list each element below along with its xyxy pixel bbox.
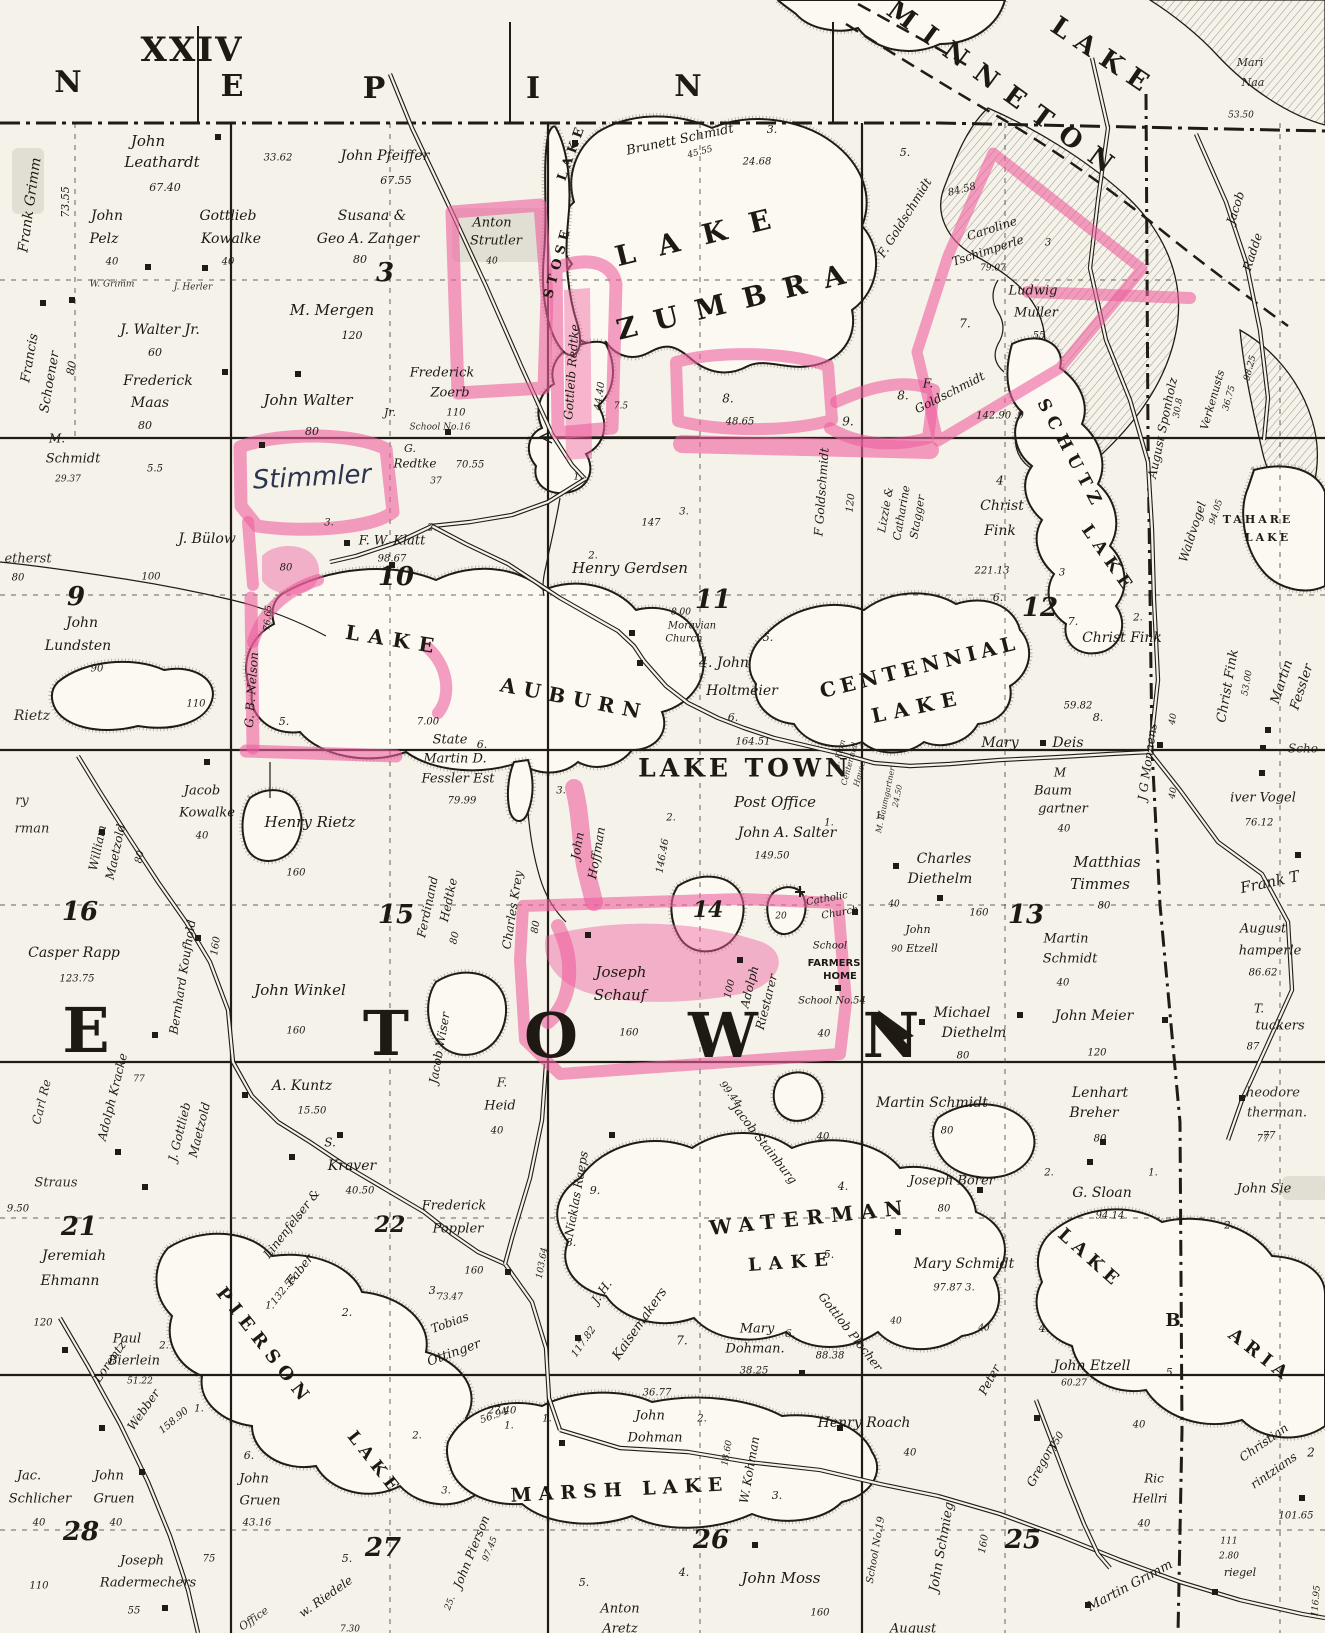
map-label: Naa: [1241, 76, 1265, 89]
map-label: 160: [464, 1266, 484, 1277]
map-label: 55: [1033, 331, 1046, 342]
map-label: Redtke: [392, 457, 436, 471]
map-label: Gruen: [239, 1494, 280, 1509]
map-label: Frederick: [122, 373, 192, 389]
map-label: heodore: [1246, 1086, 1300, 1101]
house-marker: [162, 1605, 168, 1611]
map-label: 40.50: [345, 1186, 375, 1197]
map-label: Charles: [917, 851, 972, 867]
map-label: F. W. Klatt: [358, 534, 426, 549]
map-label: Lundsten: [44, 638, 111, 654]
map-label: 111: [1220, 1537, 1237, 1547]
map-label: 80: [1098, 901, 1111, 912]
map-label: 20: [774, 912, 787, 922]
house-marker: [215, 134, 221, 140]
house-marker: [895, 1229, 901, 1235]
map-label: 2.80: [1218, 1552, 1239, 1562]
map-label: 51.22: [127, 1377, 153, 1387]
map-label: 15: [378, 900, 414, 930]
house-marker: [204, 759, 210, 765]
map-label: Frederick: [421, 1199, 487, 1214]
map-label: 3.: [767, 123, 778, 136]
map-label: J. Herler: [172, 283, 213, 293]
map-label: Webber: [124, 1386, 163, 1433]
map-label: O: [524, 999, 578, 1072]
map-label: G. Sloan: [1072, 1185, 1131, 1201]
map-label: 60.27: [1061, 1379, 1087, 1389]
map-label: John Sie: [1234, 1182, 1292, 1197]
map-label: 90: [91, 664, 104, 675]
map-label: etherst: [4, 552, 52, 567]
map-label: 60: [148, 346, 162, 359]
map-label: 40: [1137, 1519, 1151, 1530]
map-label: 160: [969, 908, 989, 919]
map-label: 3.: [441, 1486, 451, 1497]
map-label: Heid: [483, 1099, 516, 1114]
map-label: 97.87 3.: [933, 1283, 974, 1294]
map-label: 80: [938, 1204, 951, 1215]
map-label: John: [903, 923, 930, 936]
map-label: Holtmeier: [705, 683, 779, 699]
map-label: 160: [619, 1028, 639, 1039]
map-label: 7.00: [417, 717, 440, 728]
highlighter-stroke: [248, 522, 253, 585]
map-label: 5.: [1166, 1366, 1177, 1379]
map-label: John Moss: [739, 1569, 821, 1587]
house-marker: [222, 369, 228, 375]
map-label: Aretz: [601, 1622, 638, 1633]
map-label: 2.: [158, 1341, 169, 1352]
map-label: 3.: [772, 1489, 783, 1502]
map-label: Hellri: [1132, 1492, 1168, 1506]
map-label: 37: [430, 477, 442, 487]
house-marker: [142, 1184, 148, 1190]
map-label: 22: [374, 1212, 406, 1238]
map-label: LAKE: [1045, 11, 1162, 103]
map-label: XXIV: [140, 30, 243, 70]
house-marker: [629, 630, 635, 636]
map-label: 94.14: [1096, 1211, 1125, 1222]
map-label: John: [63, 615, 98, 631]
map-label: 142.90 .9: [976, 411, 1024, 422]
map-label: School: [813, 941, 847, 952]
house-marker: [1017, 1012, 1023, 1018]
map-label: Gruen: [93, 1492, 134, 1507]
map-label: 12: [1022, 593, 1058, 623]
highlighter-stroke: [246, 751, 396, 756]
map-label: Timmes: [1070, 875, 1130, 893]
map-label: 6.: [244, 1449, 255, 1462]
house-marker: [139, 1469, 145, 1475]
map-label: 40: [817, 1029, 831, 1040]
map-label: 2.: [665, 813, 676, 824]
map-label: 80: [941, 1126, 954, 1137]
house-marker: [1260, 745, 1266, 751]
map-label: LAKE TOWN: [638, 754, 852, 783]
map-label: 33.62: [264, 153, 293, 164]
map-label: Schlicher: [9, 1492, 72, 1507]
map-label: 21: [60, 1212, 97, 1242]
map-label: G.: [404, 442, 416, 455]
map-label: 2: [1306, 1446, 1315, 1460]
map-label: Anton: [599, 1602, 639, 1617]
map-label: 86.62: [1249, 968, 1278, 979]
map-label: 5.: [342, 1552, 353, 1565]
map-label: 40: [1057, 824, 1071, 835]
map-label: 2.: [1132, 613, 1143, 624]
stream: [993, 280, 1004, 372]
map-label: 2.: [696, 1414, 707, 1425]
map-label: Diethelm: [907, 871, 973, 887]
map-label: 90: [891, 945, 903, 955]
map-label: 100: [141, 572, 161, 583]
map-label: School No.16: [409, 423, 470, 433]
map-label: 40: [1167, 712, 1179, 726]
map-label: 110: [446, 408, 466, 419]
house-marker: [937, 895, 943, 901]
map-label: 40: [816, 1132, 830, 1143]
map-label: Kowalke: [178, 806, 235, 821]
house-marker: [295, 371, 301, 377]
map-label: John: [88, 208, 123, 224]
house-marker: [1259, 770, 1265, 776]
house-marker: [1239, 1095, 1245, 1101]
map-label: 80: [280, 563, 293, 574]
map-label: 76.65: [263, 605, 275, 632]
map-label: 158.90: [157, 1405, 191, 1436]
map-label: 5.: [579, 1576, 590, 1589]
map-label: therman.: [1247, 1106, 1307, 1121]
map-label: 40: [887, 900, 900, 910]
map-label: 73.47: [437, 1293, 463, 1303]
map-label: 4.: [837, 1180, 849, 1193]
map-label: 30.8: [1172, 397, 1185, 419]
house-marker: [242, 1092, 248, 1098]
map-label: N: [674, 69, 701, 104]
map-label: Fessler Est: [421, 772, 496, 787]
map-label: John Winkel: [251, 981, 346, 999]
map-label: Mari: [1236, 56, 1264, 69]
map-label: Mary Schmidt: [913, 1256, 1015, 1272]
house-marker: [145, 264, 151, 270]
map-label: Schauf: [594, 986, 649, 1004]
map-label: 9.: [590, 1184, 601, 1197]
map-label: F.: [496, 1076, 507, 1090]
map-label: 13: [1008, 900, 1044, 930]
map-label: 4: [995, 474, 1004, 488]
map-label: Waldvogel: [1176, 500, 1209, 564]
map-label: hamperle: [1239, 944, 1302, 959]
map-label: 4. John: [698, 655, 749, 671]
map-label: Dohman: [626, 1431, 682, 1446]
map-label: 101.65: [1279, 1511, 1314, 1522]
map-label: S.: [324, 1136, 336, 1150]
map-label: N: [54, 65, 81, 100]
map-label: 80: [957, 1051, 970, 1062]
map-label: 5.: [279, 715, 290, 728]
map-label: E: [62, 994, 109, 1067]
map-label: B: [1165, 1310, 1180, 1331]
house-marker: [505, 1269, 511, 1275]
map-label: J G Monnens: [1135, 722, 1160, 804]
map-label: Office: [236, 1604, 271, 1633]
map-label: Susana &: [338, 208, 406, 224]
map-label: 6.: [728, 711, 739, 724]
map-label: John Meier: [1052, 1008, 1135, 1024]
map-label: 8.: [1093, 711, 1104, 724]
house-marker: [559, 1440, 565, 1446]
map-label: 160: [810, 1608, 830, 1619]
map-label: 80: [64, 360, 79, 376]
map-label: 123.75: [60, 974, 95, 985]
map-label: Post Office: [733, 793, 816, 811]
map-label: Anton: [471, 216, 511, 231]
map-label: 87: [1247, 1042, 1260, 1053]
map-label: 25: [1004, 1525, 1041, 1555]
house-marker: [1162, 1017, 1168, 1023]
map-label: Jr.: [382, 406, 396, 419]
house-marker: [835, 985, 841, 991]
map-label: 7.30: [340, 1625, 360, 1633]
map-label: 1.: [542, 1414, 552, 1425]
map-label: 2.: [341, 1306, 353, 1319]
map-label: Henry Roach: [817, 1415, 911, 1431]
map-label: 160: [286, 1026, 306, 1037]
map-label: 7.: [676, 1334, 687, 1348]
house-marker: [893, 863, 899, 869]
map-label: Christ: [980, 498, 1024, 514]
map-label: 120: [845, 492, 858, 513]
map-label: 160: [209, 935, 223, 956]
map-label: Francis: [18, 332, 42, 385]
map-label: 2.: [1223, 1221, 1234, 1232]
map-label: 36.75: [1221, 384, 1238, 412]
house-marker: [259, 442, 265, 448]
house-marker: [69, 297, 75, 303]
map-label: F. Goldschmidt: [874, 175, 935, 260]
map-label: Schmidt: [1043, 952, 1098, 967]
map-label: 3: [1059, 568, 1065, 579]
map-label: W: [687, 999, 759, 1072]
map-label: 5.: [824, 1248, 835, 1261]
house-marker: [799, 1370, 805, 1376]
map-label: Schoener: [37, 349, 63, 414]
map-label: LAKE: [1245, 531, 1291, 544]
map-label: FARMERS: [808, 958, 861, 969]
map-label: Henry Rietz: [264, 813, 356, 831]
map-label: 9.: [842, 415, 853, 429]
map-label: Martin Schmidt: [875, 1095, 988, 1111]
map-label: TAHARE: [1223, 513, 1294, 526]
map-label: rman: [15, 822, 50, 837]
map-label: 40: [32, 1518, 46, 1529]
map-label: 7.5: [614, 402, 629, 412]
map-label: 4.: [678, 1566, 690, 1579]
house-marker: [337, 1132, 343, 1138]
map-label: 80: [530, 919, 543, 934]
map-label: Christ Fink: [1082, 630, 1162, 646]
map-label: Strutler: [470, 234, 523, 249]
map-label: tuckers: [1255, 1019, 1305, 1034]
map-label: 5.: [763, 631, 774, 644]
map-label: 53.00: [1240, 669, 1254, 696]
map-label: John Schmieg: [926, 1501, 957, 1596]
lake-auburn-outlet-neck: [508, 760, 533, 821]
map-label: I: [526, 71, 540, 106]
map-label: 77: [133, 1075, 145, 1085]
map-label: Michael: [933, 1005, 991, 1021]
map-label: Leathardt: [123, 153, 200, 171]
map-label: Zoerb: [429, 386, 469, 401]
map-label: John Walter: [260, 391, 353, 409]
map-label: 79.07: [980, 264, 1006, 274]
map-label: 1.: [504, 1421, 514, 1432]
map-label: 10: [378, 562, 414, 592]
map-label: Breher: [1068, 1105, 1120, 1121]
map-label: Poppler: [432, 1222, 485, 1237]
map-label: T: [363, 997, 409, 1070]
map-label: P: [363, 71, 386, 106]
map-label: Casper Rapp: [28, 945, 120, 961]
map-label: Matthias: [1072, 853, 1141, 871]
map-label: 55: [128, 1606, 141, 1617]
house-marker: [1034, 1415, 1040, 1421]
map-label: Rietz: [13, 708, 51, 724]
map-label: 80: [353, 253, 367, 266]
map-label: August: [1239, 922, 1287, 937]
map-label: 99.44: [717, 1079, 743, 1108]
map-label: iver Vogel: [1230, 791, 1296, 806]
map-label: Frederick: [409, 366, 475, 381]
house-marker: [1212, 1589, 1218, 1595]
map-label: 36.77: [643, 1388, 672, 1399]
plat-map-svg: LAKE TOWN XXIVNEPINMINNETONLAKEJohnLeath…: [0, 0, 1325, 1633]
map-label: 110: [186, 699, 206, 710]
map-label: 40: [490, 1126, 504, 1137]
map-label: w. Riedele: [296, 1573, 355, 1620]
map-label: Jac.: [14, 1469, 41, 1484]
map-label: Scho: [1288, 742, 1318, 756]
house-marker: [1265, 727, 1271, 733]
map-label: 27.40: [487, 1406, 517, 1417]
map-label: 73.55: [59, 186, 72, 218]
house-marker: [919, 1019, 925, 1025]
map-label: 27: [364, 1533, 401, 1563]
map-label: 120: [1087, 1048, 1107, 1059]
map-label: 5.5: [147, 464, 163, 475]
map-label: 9: [67, 582, 85, 612]
map-label: Moravian: [667, 621, 716, 632]
house-marker: [609, 1132, 615, 1138]
map-label: N: [863, 999, 920, 1072]
map-label: 40: [1132, 1420, 1146, 1431]
map-label: J. Walter Jr.: [117, 322, 200, 338]
map-label: Joseph: [593, 963, 647, 981]
map-label: 120: [33, 1318, 53, 1329]
map-label: 3: [1045, 238, 1051, 249]
map-label: Geo A. Zanger: [317, 231, 421, 247]
map-label: 80: [12, 573, 25, 584]
map-label: 6.: [477, 738, 488, 751]
map-label: Joseph: [117, 1554, 164, 1569]
house-marker: [40, 300, 46, 306]
map-label: 147: [641, 518, 661, 529]
map-label: 76.12: [1245, 818, 1274, 829]
map-label: 2.: [1043, 1168, 1054, 1179]
lake-pond-west: [52, 662, 213, 730]
map-label: Stimmler: [252, 459, 374, 495]
map-label: M: [1053, 766, 1067, 780]
map-label: F.: [922, 377, 933, 391]
map-label: 160: [286, 868, 306, 879]
map-label: 80: [1094, 1134, 1107, 1145]
map-label: 40: [903, 1448, 917, 1459]
map-label: Joseph Borer: [906, 1174, 996, 1189]
map-label: Straus: [34, 1176, 77, 1191]
map-label: Jeremiah: [39, 1248, 106, 1264]
map-label: Baum: [1033, 784, 1072, 799]
map-label: 29.37: [54, 475, 81, 485]
house-marker: [99, 1425, 105, 1431]
map-label: Ottinger: [425, 1336, 483, 1369]
map-label: Gottlieb: [199, 208, 256, 224]
map-label: Pelz: [89, 231, 120, 247]
map-label: Kraver: [327, 1158, 378, 1174]
map-label: 15.50: [298, 1106, 327, 1117]
house-marker: [1040, 740, 1046, 746]
map-label: M.: [48, 432, 65, 446]
map-label: 1.: [1148, 1168, 1158, 1179]
map-label: Maas: [130, 395, 169, 411]
map-label: Christ Fink: [1214, 648, 1242, 724]
house-marker: [737, 957, 743, 963]
map-label: 67.55: [380, 174, 412, 187]
map-label: 120: [342, 329, 363, 342]
map-label: 79.99: [448, 796, 477, 807]
map-label: Etzell: [905, 942, 938, 955]
house-marker: [62, 1347, 68, 1353]
map-label: Mary: [980, 735, 1019, 751]
map-label: School No.54: [798, 996, 866, 1007]
map-label: 40: [109, 1518, 123, 1529]
map-label: 16: [62, 897, 98, 927]
house-marker: [289, 1154, 295, 1160]
map-label: HOME: [823, 971, 857, 982]
map-label: 75: [203, 1554, 216, 1565]
map-label: Ludwig: [1008, 284, 1058, 299]
map-label: 24.68: [742, 157, 772, 168]
map-label: 149.50: [755, 851, 791, 862]
map-label: 70.55: [456, 460, 485, 471]
map-label: 1.: [194, 1404, 204, 1415]
map-label: M. Mergen: [289, 301, 374, 319]
house-marker: [1299, 1495, 1305, 1501]
map-label: Martin Grimm: [1084, 1557, 1175, 1615]
map-label: 7.: [1068, 615, 1079, 628]
house-marker: [752, 1542, 758, 1548]
map-label: 2.: [411, 1431, 422, 1442]
map-label: School No.19: [865, 1515, 888, 1584]
map-label: Linenfelser &: [260, 1186, 323, 1261]
map-label: 43.16: [242, 1518, 272, 1529]
map-label: 3.: [556, 786, 566, 797]
house-marker: [1087, 1159, 1093, 1165]
map-label: 40: [221, 257, 235, 268]
map-label: A. Kuntz: [270, 1078, 333, 1094]
map-label: 6.: [993, 591, 1004, 604]
map-label: 53.50: [1228, 111, 1254, 121]
map-label: 28: [62, 1517, 99, 1547]
